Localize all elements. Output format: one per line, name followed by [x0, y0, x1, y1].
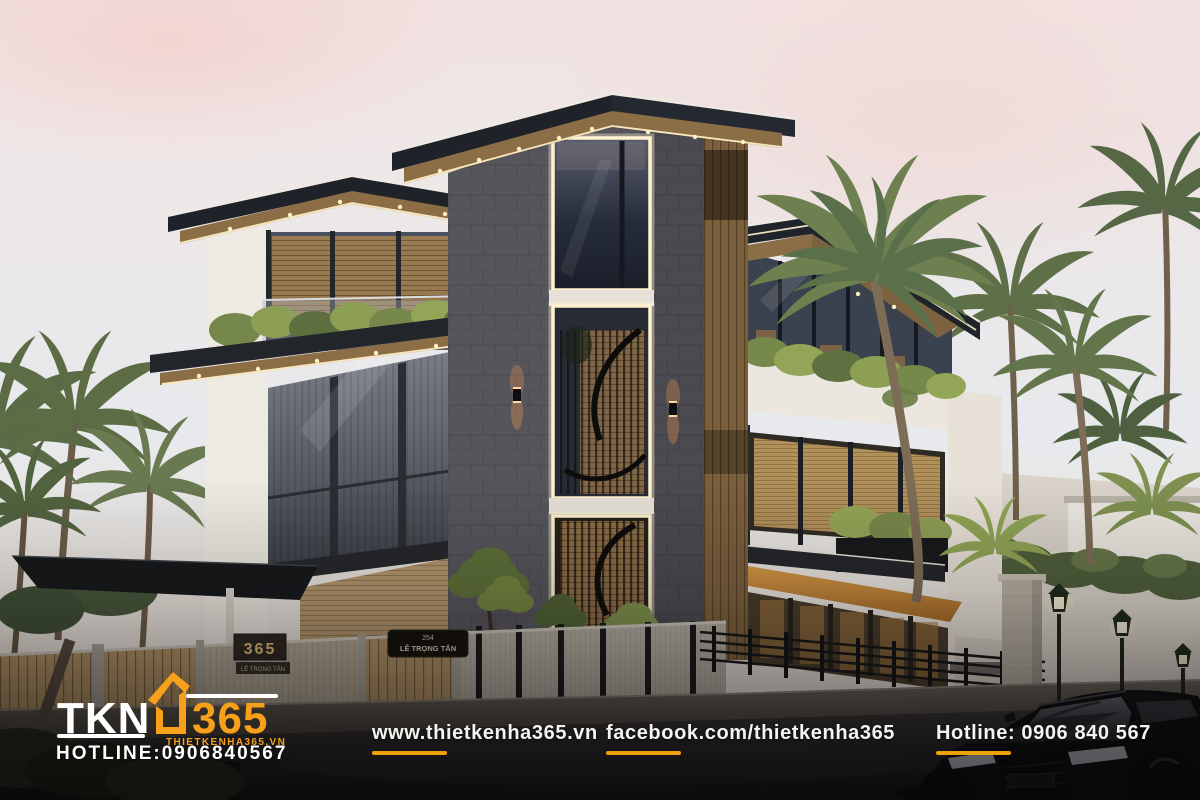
led-frame-window-middle	[553, 306, 650, 498]
gate-sign: 365 LÊ TRỌNG TẤN	[234, 634, 290, 674]
gate-sign-number: 365	[244, 641, 277, 658]
led-frame-window-top	[553, 138, 650, 290]
footer-facebook: facebook.com/thietkenha365	[606, 722, 895, 745]
plaque-street: LÊ TRỌNG TẤN	[400, 643, 456, 653]
footer-hotline: Hotline: 0906 840 567	[936, 722, 1151, 745]
footer-facebook-underline	[606, 751, 681, 755]
plaque-number: 254	[422, 635, 434, 642]
palm-trees-left	[0, 331, 237, 661]
gate-sign-street: LÊ TRỌNG TẤN	[241, 665, 285, 673]
footer-website-underline	[372, 751, 447, 755]
house-icon	[146, 664, 192, 742]
address-plaque: 254 LÊ TRỌNG TẤN	[388, 630, 468, 657]
carport-post	[226, 588, 234, 650]
logo-hotline: HOTLINE:0906840567	[56, 743, 287, 765]
logo-365: 365	[192, 697, 268, 741]
logo-rule-top	[186, 694, 278, 698]
car-license-plate	[1008, 774, 1054, 787]
footer-website: www.thietkenha365.vn	[372, 722, 598, 745]
villa-render-poster: 365 LÊ TRỌNG TẤN 254 LÊ TRỌNG TẤN	[0, 0, 1200, 800]
logo-rule-bottom	[57, 734, 145, 738]
footer-hotline-underline	[936, 751, 1011, 755]
stone-pillar	[998, 574, 1046, 698]
